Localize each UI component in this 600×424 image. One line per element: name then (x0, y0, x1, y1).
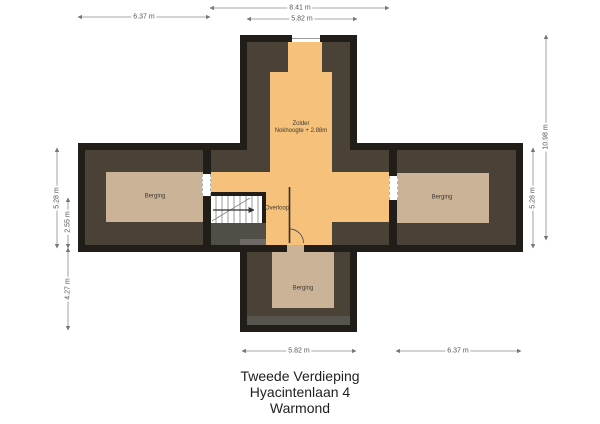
dim-top-total: 8.41 m (287, 5, 312, 12)
room-zolder-height-note: Nokhoogte + 2.88m (275, 128, 328, 135)
floor-title: Tweede Verdieping (0, 368, 600, 384)
dim-top-wing: 5.82 m (289, 16, 314, 23)
room-berging-bottom-label: Berging (293, 286, 314, 293)
wall-left-partition (203, 150, 211, 252)
room-zolder-name: Zolder (275, 121, 328, 128)
dim-bottom-right-wing: 6.37 m (445, 348, 470, 355)
room-zolder-neck (288, 42, 322, 72)
room-berging-left-label: Berging (145, 194, 166, 201)
title-block: Tweede Verdieping Hyacintenlaan 4 Warmon… (0, 368, 600, 416)
attic-block-band-bottom-right (332, 222, 389, 245)
floor-strip-band-bottom (240, 239, 266, 245)
address-line: Hyacintenlaan 4 (0, 384, 600, 400)
dim-left-lower: 4.27 m (65, 276, 72, 301)
city-line: Warmond (0, 400, 600, 416)
room-zolder-label: Zolder Nokhoogte + 2.88m (275, 121, 328, 135)
dim-right-total: 10.98 m (543, 122, 550, 151)
opening-right-berging (389, 176, 398, 200)
floor-strip-bottom-wing (247, 316, 350, 325)
dim-left-stairwell: 2.55 m (65, 209, 72, 234)
dim-bottom-wing: 5.82 m (286, 348, 311, 355)
doorway-floor-bottom (287, 245, 304, 252)
dim-left-band: 5.28 m (54, 185, 61, 210)
dim-top-left-wing: 6.37 m (131, 14, 156, 21)
room-berging-bottom-floor (272, 252, 334, 308)
stairwell-floor (211, 196, 262, 223)
dim-right-band: 5.28 m (530, 185, 537, 210)
floorplan-canvas: Zolder Nokhoogte + 2.88m Berging Berging… (0, 0, 600, 424)
room-berging-right-label: Berging (432, 195, 453, 202)
wall-right-partition (389, 150, 397, 252)
window-sill-line (292, 38, 320, 39)
window-top-wing (292, 35, 320, 42)
opening-left-berging (202, 174, 211, 196)
room-overloop-label: Overloop (265, 206, 289, 213)
